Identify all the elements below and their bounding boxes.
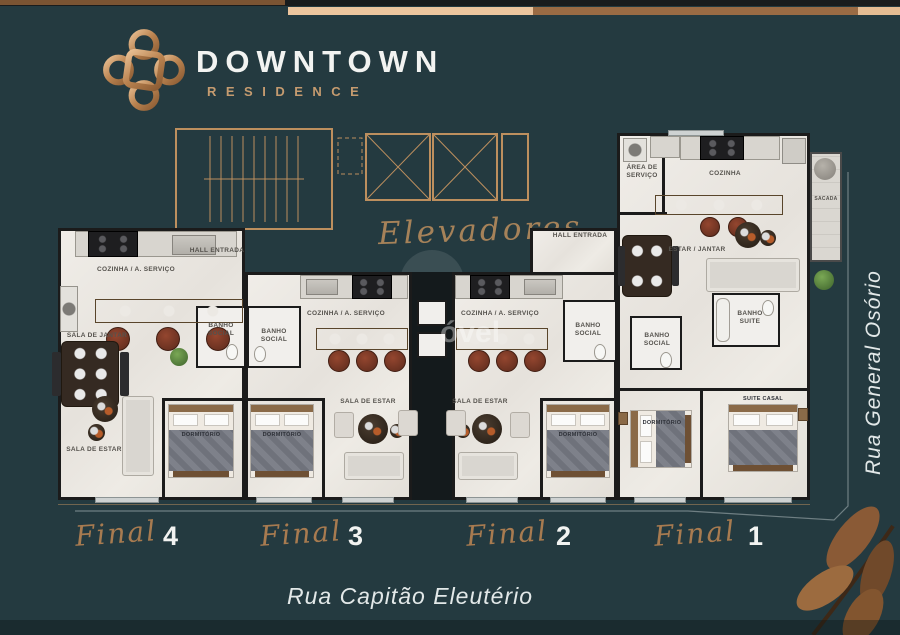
poster-root: DOWNTOWN RESIDENCE Elevadores [0,0,900,635]
final-num-4: 4 [163,521,178,552]
final-word-1: Final [653,514,737,553]
street-name-bottom: Rua Capitão Eleutério [180,583,640,610]
bottom-vignette [0,620,900,635]
final-word-4: Final [74,514,158,553]
final-word-2: Final [465,514,549,553]
street-name-right: Rua General Osório [862,165,886,475]
final-word-3: Final [259,514,343,553]
final-num-2: 2 [556,521,571,552]
leaf-decoration [755,488,900,635]
final-num-3: 3 [348,521,363,552]
